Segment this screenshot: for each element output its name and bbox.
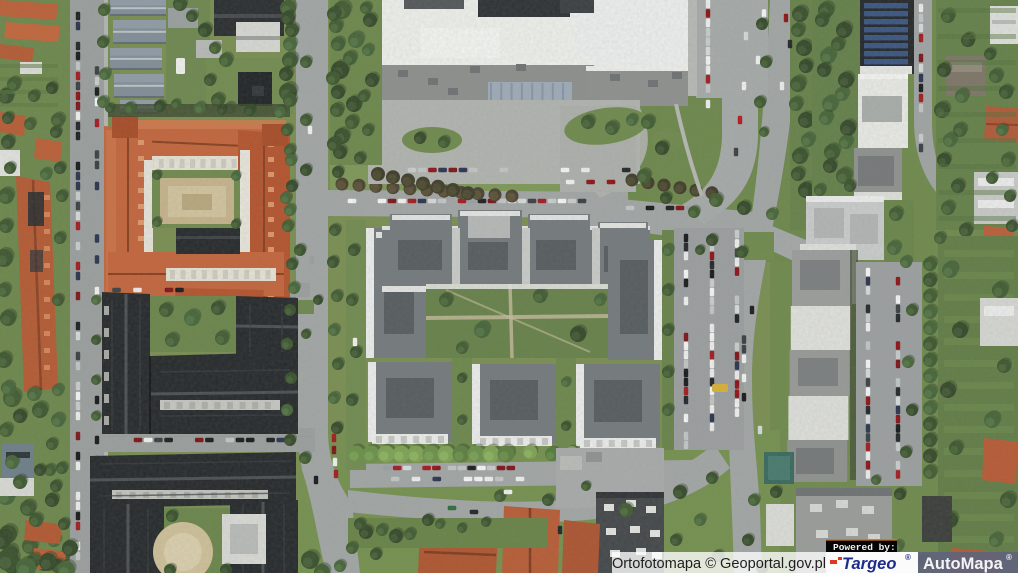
svg-text:®: ®	[1006, 553, 1012, 562]
svg-text:®: ®	[905, 553, 911, 562]
svg-text:Powered by:: Powered by:	[833, 542, 896, 553]
svg-text:Ortofotomapa © Geoportal.gov.p: Ortofotomapa © Geoportal.gov.pl	[612, 556, 826, 572]
svg-text:Targeo: Targeo	[842, 555, 896, 573]
svg-text:AutoMapa: AutoMapa	[923, 555, 1004, 573]
